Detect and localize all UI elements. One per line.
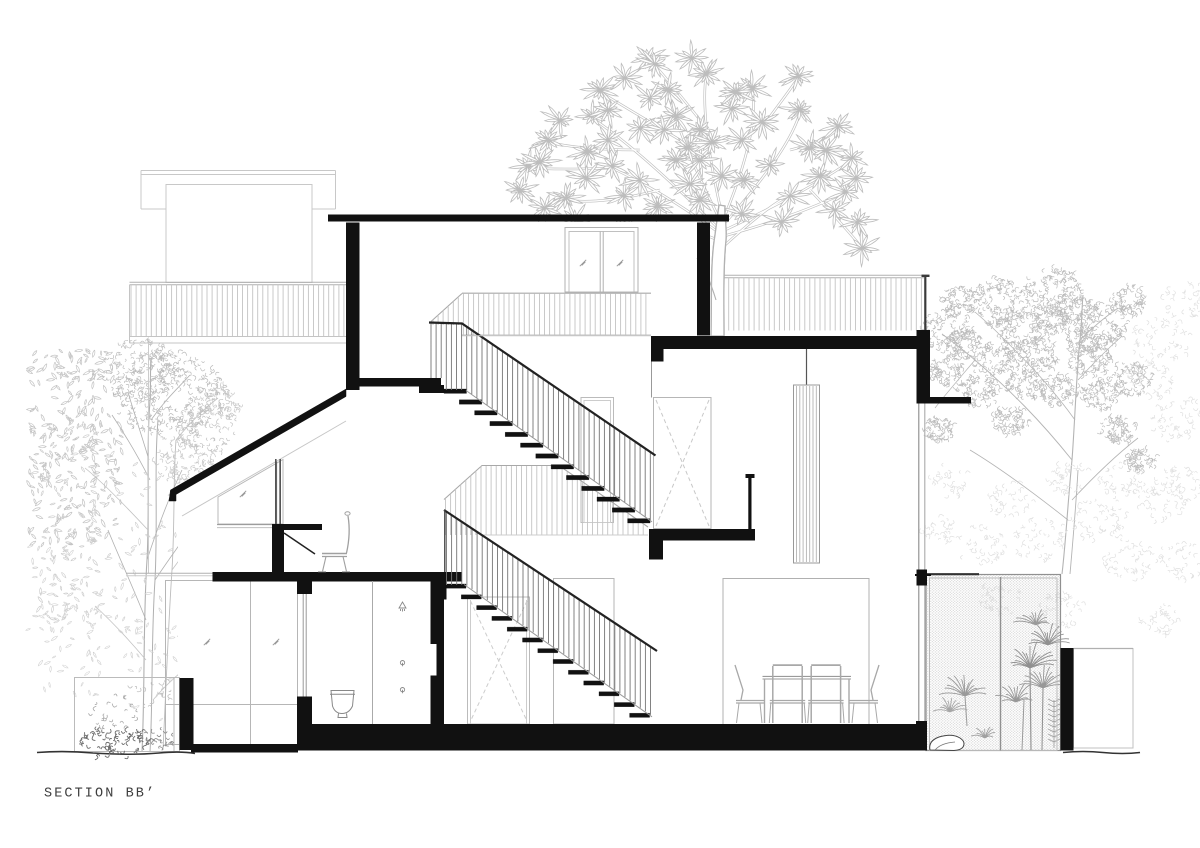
svg-text:SECTION BB’: SECTION BB’ — [44, 787, 156, 802]
